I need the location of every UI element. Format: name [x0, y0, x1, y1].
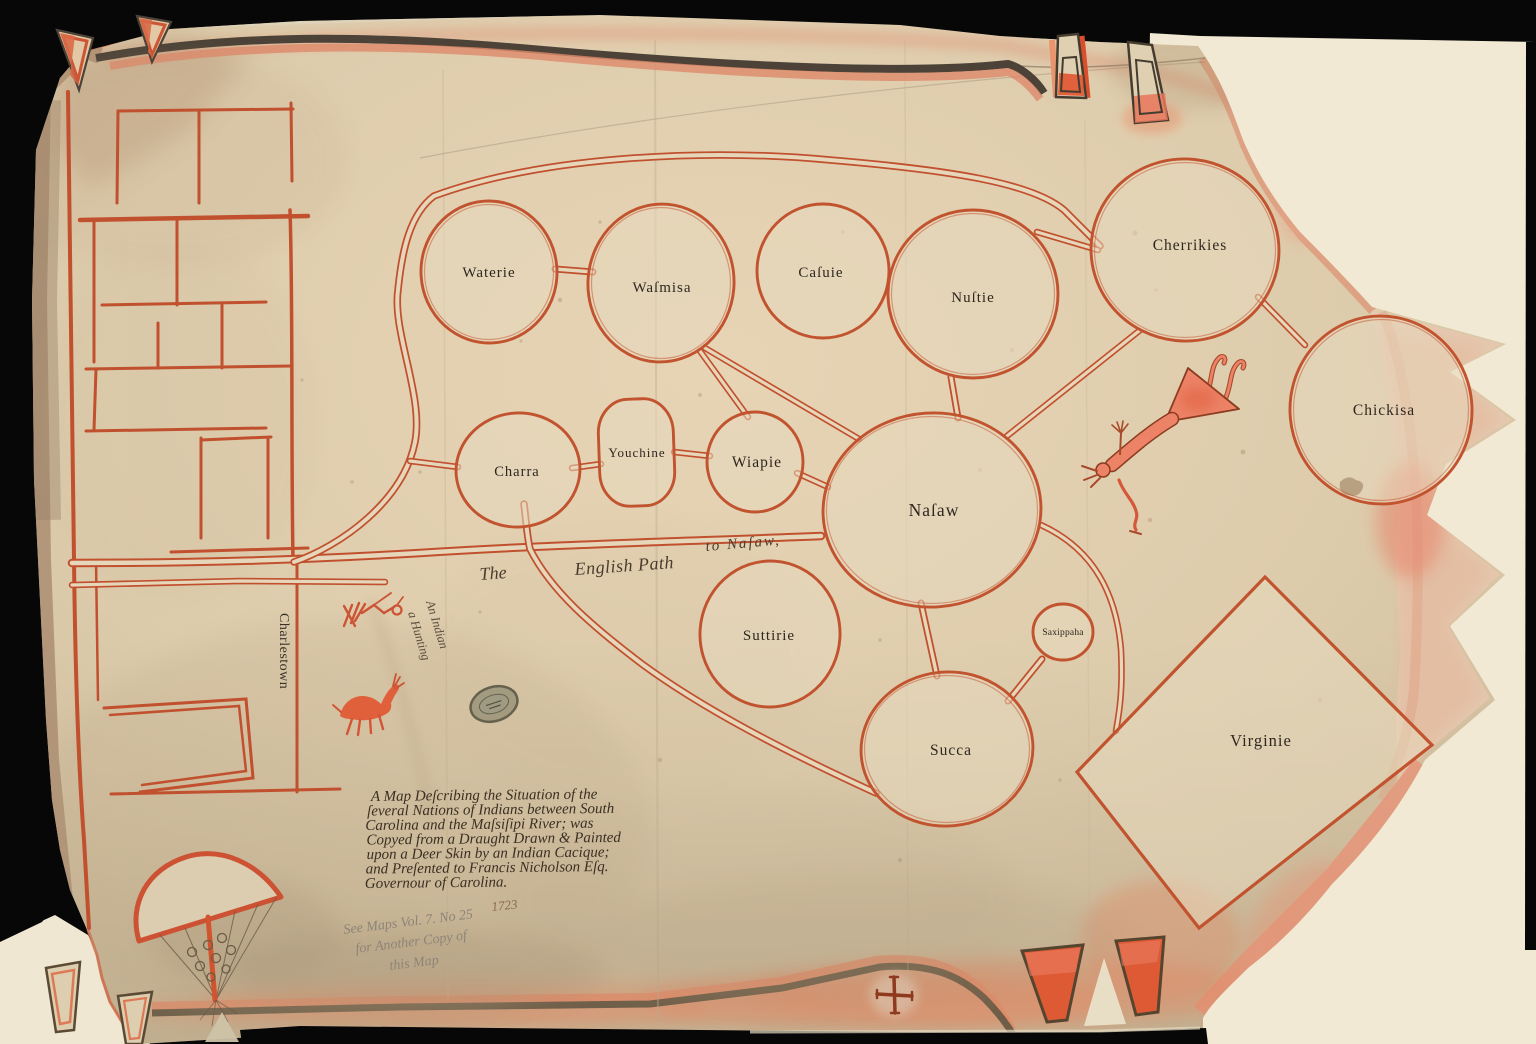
svg-text:Virginie: Virginie	[1230, 731, 1292, 750]
svg-text:Charra: Charra	[494, 464, 539, 480]
svg-text:Saxippaha: Saxippaha	[1042, 628, 1084, 638]
svg-text:Nuſtie: Nuſtie	[951, 290, 995, 306]
svg-text:Wiapie: Wiapie	[732, 454, 782, 471]
svg-text:Youchine: Youchine	[608, 445, 665, 460]
svg-text:Waſmisa: Waſmisa	[632, 280, 691, 296]
svg-text:Chickisa: Chickisa	[1353, 402, 1415, 419]
svg-text:Succa: Succa	[930, 742, 972, 759]
svg-text:Caſuie: Caſuie	[798, 265, 843, 281]
svg-text:Waterie: Waterie	[462, 265, 515, 281]
svg-text:The: The	[479, 562, 507, 584]
svg-text:Governour of Carolina.: Governour of Carolina.	[365, 875, 508, 892]
svg-text:Suttirie: Suttirie	[743, 628, 795, 644]
svg-text:Cherrikies: Cherrikies	[1153, 237, 1228, 254]
svg-text:Naſaw: Naſaw	[909, 500, 960, 520]
svg-text:Charlestown: Charlestown	[276, 613, 291, 689]
svg-text:1723: 1723	[491, 896, 519, 914]
